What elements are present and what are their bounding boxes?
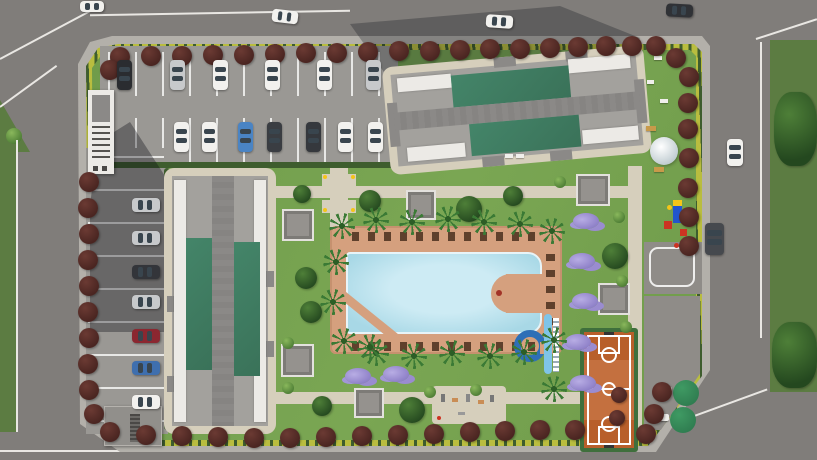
tree-maroon: [644, 404, 664, 424]
parked-car: [132, 329, 160, 343]
parked-car: [368, 122, 383, 152]
road-marking: [0, 65, 57, 108]
tree: [602, 243, 628, 269]
parked-car: [132, 361, 160, 375]
fitness-equipment: [441, 394, 445, 402]
tree-maroon: [78, 250, 98, 270]
tree-maroon: [79, 276, 99, 296]
palm-tree: [329, 213, 355, 239]
car-on-road: [486, 14, 514, 29]
parked-car: [238, 122, 253, 152]
gazebo-canopy: [670, 407, 696, 433]
tree-maroon: [609, 410, 625, 426]
building-b-roof-white: [174, 180, 186, 422]
tree-maroon: [622, 36, 642, 56]
tree-maroon: [79, 380, 99, 400]
road-marking: [16, 140, 18, 432]
bush: [282, 382, 294, 394]
tree-maroon: [141, 46, 161, 66]
tree-maroon: [678, 119, 698, 139]
bench: [505, 154, 513, 158]
bush: [470, 384, 482, 396]
parked-car: [265, 60, 280, 90]
tree-maroon: [565, 420, 585, 440]
palm-tree: [323, 249, 349, 275]
road-marking: [90, 10, 350, 17]
fitness-equipment: [466, 394, 470, 402]
tree-maroon: [78, 354, 98, 374]
tree-maroon: [388, 425, 408, 445]
tree-maroon: [679, 67, 699, 87]
tree-maroon: [611, 387, 627, 403]
parked-car: [132, 231, 160, 245]
tree-maroon: [679, 207, 699, 227]
flower-pot: [351, 208, 355, 212]
bush: [620, 321, 632, 333]
parked-car: [213, 60, 228, 90]
building-a-wing: [550, 149, 573, 161]
palm-tree: [507, 211, 533, 237]
gazebo-canopy: [673, 380, 699, 406]
tree-maroon: [530, 420, 550, 440]
purple-shrub: [345, 368, 371, 384]
basketball-hoop: [604, 332, 614, 335]
car-on-road: [727, 139, 743, 166]
bench: [654, 167, 664, 172]
car-on-road: [705, 223, 724, 255]
palm-tree: [331, 328, 357, 354]
parked-car: [267, 122, 282, 152]
tree-maroon: [420, 41, 440, 61]
bush: [6, 128, 22, 144]
tree-maroon: [136, 425, 156, 445]
tree-maroon: [679, 148, 699, 168]
fitness-equipment: [478, 400, 484, 404]
tree-maroon: [352, 426, 372, 446]
palm-tree: [541, 376, 567, 402]
parked-car: [132, 395, 160, 409]
palm-tree: [541, 327, 567, 353]
bush: [424, 386, 436, 398]
playground-box: [664, 221, 672, 229]
tree-maroon: [460, 422, 480, 442]
basketball-hoop: [604, 445, 614, 448]
flower-pot: [323, 175, 327, 179]
tree-maroon: [510, 39, 530, 59]
car-on-road: [271, 8, 298, 24]
tree-maroon: [596, 36, 616, 56]
tree-maroon: [495, 421, 515, 441]
tree-maroon: [652, 382, 672, 402]
bench: [660, 99, 668, 103]
tree: [293, 185, 311, 203]
tree-maroon: [636, 424, 656, 444]
car-on-road: [80, 1, 104, 12]
building-b-walkway: [164, 168, 276, 434]
tree-maroon: [79, 328, 99, 348]
road-marking: [760, 42, 762, 338]
building-b-roof-green: [234, 242, 260, 376]
tree: [772, 322, 817, 388]
pergola: [598, 283, 630, 315]
car-on-road: [666, 3, 694, 17]
tree-maroon: [296, 43, 316, 63]
tree-maroon: [316, 427, 336, 447]
palm-tree: [435, 206, 461, 232]
entrance-canopy: [88, 90, 114, 174]
grass-outer-left: [0, 140, 16, 432]
building-b-roof-core: [212, 176, 234, 426]
bush: [616, 275, 628, 287]
bench: [516, 154, 524, 158]
tree-maroon: [450, 40, 470, 60]
fitness-equipment: [490, 395, 494, 402]
entrance-canopy-post: [102, 166, 107, 171]
parked-car: [317, 60, 332, 90]
entrance-canopy-post: [93, 166, 98, 171]
building-b: [172, 176, 268, 426]
pergola: [282, 209, 314, 241]
playground-ball: [667, 205, 672, 210]
tree: [774, 92, 817, 166]
parked-car: [132, 265, 160, 279]
tree-maroon: [389, 41, 409, 61]
purple-shrub: [570, 375, 596, 391]
tree-maroon: [568, 37, 588, 57]
tree-maroon: [79, 224, 99, 244]
bench: [647, 80, 654, 84]
aerial-site-render: [0, 0, 817, 460]
palm-tree: [511, 339, 537, 365]
tree-maroon: [679, 236, 699, 256]
tree-maroon: [79, 172, 99, 192]
parked-car: [202, 122, 217, 152]
parked-car: [170, 60, 185, 90]
playground-box: [680, 229, 687, 236]
parked-car: [117, 60, 132, 90]
tree-maroon: [424, 424, 444, 444]
palm-tree: [477, 343, 503, 369]
road-marking: [756, 18, 817, 40]
fitness-equipment: [452, 398, 458, 402]
bench: [646, 126, 656, 131]
bush: [282, 337, 294, 349]
tree-maroon: [678, 93, 698, 113]
palm-tree: [539, 218, 565, 244]
pool-ladder: [496, 290, 502, 296]
tree-maroon: [280, 428, 300, 448]
playground-roof: [673, 200, 682, 206]
entrance-canopy-slats: [92, 126, 110, 162]
tree-maroon: [100, 422, 120, 442]
pergola: [576, 174, 610, 206]
palm-tree: [320, 289, 346, 315]
palm-tree: [357, 334, 383, 360]
fitness-area: [432, 386, 506, 424]
road-marking: [0, 6, 99, 60]
parked-car: [132, 198, 160, 212]
fitness-equipment: [437, 416, 441, 420]
parked-car: [132, 295, 160, 309]
purple-shrub: [569, 253, 595, 269]
building-a-wing: [482, 155, 505, 167]
parked-car: [338, 122, 353, 152]
court-arc-top: [601, 347, 617, 363]
tree-maroon: [678, 178, 698, 198]
tree-maroon: [480, 39, 500, 59]
palm-tree: [399, 209, 425, 235]
tree-maroon: [234, 45, 254, 65]
building-a-roof-white: [407, 143, 466, 162]
parked-car: [366, 60, 381, 90]
parked-car: [306, 122, 321, 152]
palm-tree: [401, 343, 427, 369]
parked-car: [174, 122, 189, 152]
flower-pot: [351, 175, 355, 179]
tree-maroon: [540, 38, 560, 58]
tree: [295, 267, 317, 289]
palm-tree: [471, 209, 497, 235]
flower-pot: [323, 208, 327, 212]
tree-maroon: [84, 404, 104, 424]
tree: [503, 186, 523, 206]
purple-shrub: [565, 334, 591, 350]
tree-maroon: [78, 302, 98, 322]
tree-maroon: [358, 42, 378, 62]
bench: [654, 56, 662, 60]
building-a-wing: [493, 56, 516, 68]
tree-maroon: [666, 48, 686, 68]
bush: [613, 211, 625, 223]
basketball-court-surface: [584, 332, 634, 448]
grass-outer-topleft: [0, 100, 30, 152]
pergola: [281, 344, 314, 377]
building-a: [390, 53, 643, 166]
tree-maroon: [78, 198, 98, 218]
entrance-canopy-panel: [92, 95, 110, 122]
pergola: [354, 388, 384, 418]
palm-tree: [439, 340, 465, 366]
tree: [300, 301, 322, 323]
tree-maroon: [208, 427, 228, 447]
palm-tree: [363, 207, 389, 233]
purple-shrub: [383, 366, 409, 382]
building-a-roof-white: [582, 126, 639, 145]
tree: [399, 397, 425, 423]
tree-maroon: [172, 426, 192, 446]
tree-maroon: [646, 36, 666, 56]
purple-shrub: [573, 213, 599, 229]
purple-shrub: [572, 293, 598, 309]
tree-maroon: [244, 428, 264, 448]
bush: [554, 176, 566, 188]
building-b-roof-green: [186, 238, 212, 370]
fitness-equipment: [458, 412, 465, 415]
tree: [312, 396, 332, 416]
play-dome: [650, 137, 678, 165]
building-a-roof-white: [397, 74, 452, 93]
